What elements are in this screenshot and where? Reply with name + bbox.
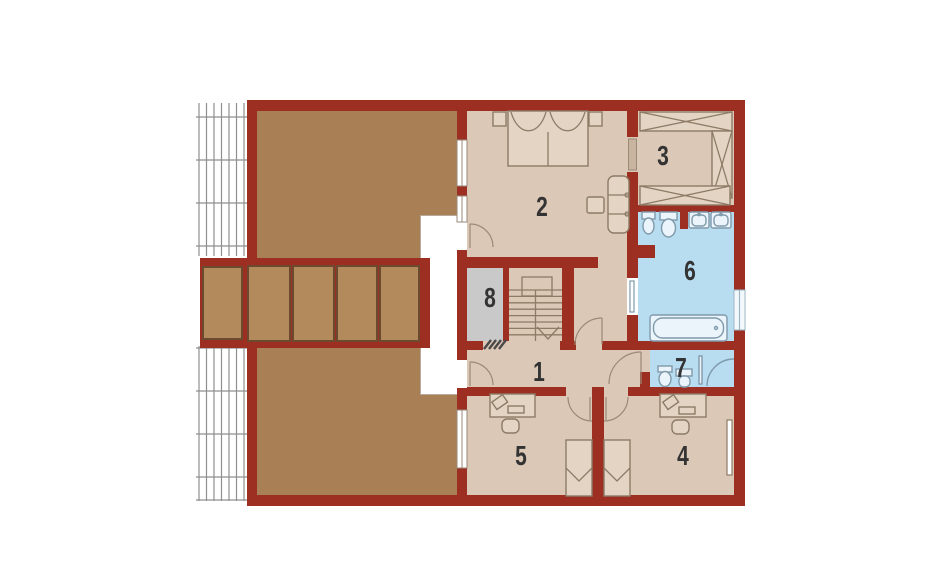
bathroom-window <box>734 290 745 330</box>
single-bed <box>566 440 592 496</box>
balcony-door-opening <box>457 360 467 388</box>
wall-attic-left-bottom <box>247 348 257 506</box>
balcony-recess-top <box>420 215 458 258</box>
wall-exterior-bottom <box>248 495 745 506</box>
bidet <box>643 218 654 234</box>
room-label-7: 7 <box>675 353 687 384</box>
radiator <box>727 420 732 475</box>
wall-room2-right <box>627 111 638 137</box>
roof-hatching-bottom <box>196 346 247 501</box>
wardrobe-door-opening <box>627 137 638 172</box>
nightstand <box>493 112 506 126</box>
balcony-recess-bottom <box>420 348 458 395</box>
room-label-8: 8 <box>484 283 496 314</box>
bathtub <box>650 315 727 341</box>
wall-stub-bath6 <box>680 212 688 229</box>
terrace-decking-panel <box>380 266 419 341</box>
room-label-3: 3 <box>657 141 669 172</box>
floor-plan-drawing: 1 2 3 4 5 6 7 8 <box>0 0 940 587</box>
wall-hall-top <box>602 341 734 350</box>
room-label-6: 6 <box>684 256 696 287</box>
sliding-door-bath6 <box>627 278 638 315</box>
terrace-decking-panel <box>337 266 377 341</box>
terrace <box>200 258 430 348</box>
roof-hatching-top <box>196 103 247 256</box>
window <box>457 140 467 186</box>
keyboard <box>679 407 695 414</box>
terrace-decking-panel <box>293 266 334 341</box>
window <box>457 410 467 468</box>
wall-hall-top <box>560 341 576 350</box>
washbasin <box>659 372 671 387</box>
office-chair <box>672 420 689 434</box>
wall-attic-left-top <box>247 100 257 258</box>
terrace-decking-panel <box>203 267 242 339</box>
room-label-2: 2 <box>536 192 548 223</box>
single-bed <box>604 440 630 496</box>
coffee-table <box>587 197 604 213</box>
room-label-5: 5 <box>515 441 527 472</box>
wall-stairs-right <box>562 268 574 341</box>
terrace-decking-panel <box>248 266 290 341</box>
toilet <box>662 219 676 237</box>
sofa <box>608 176 629 233</box>
nightstand <box>589 112 602 126</box>
floor-plan: 1 2 3 4 5 6 7 8 <box>0 0 940 587</box>
wall-storage8-right <box>503 268 509 341</box>
wall-stub-bath6-niche <box>638 245 655 258</box>
wall-storage8-bottom <box>457 341 483 350</box>
room-label-1: 1 <box>533 357 545 388</box>
wall-room2-bottom <box>457 257 598 268</box>
wall-room3-bath6 <box>638 205 734 212</box>
wall-room4-room5 <box>592 387 604 497</box>
wall-exterior-top <box>248 100 745 111</box>
room-label-4: 4 <box>677 441 689 472</box>
keyboard <box>508 406 524 413</box>
balcony-door-opening <box>457 222 467 250</box>
wall-bath6-left <box>627 315 638 341</box>
window <box>457 196 467 222</box>
office-chair <box>502 419 519 433</box>
